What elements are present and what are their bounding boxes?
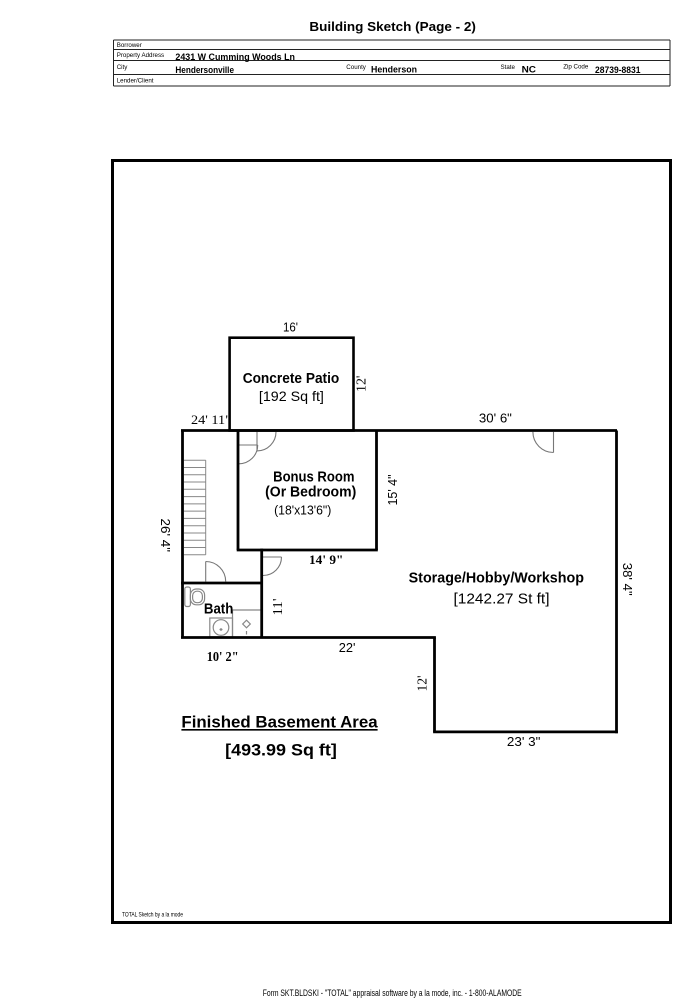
svg-text:Concrete Patio: Concrete Patio xyxy=(243,371,340,387)
svg-text:City: City xyxy=(117,64,129,71)
svg-text:Henderson: Henderson xyxy=(371,65,417,76)
svg-text:Bath: Bath xyxy=(204,602,233,618)
svg-text:Bonus Room: Bonus Room xyxy=(273,469,354,485)
svg-text:Property Address: Property Address xyxy=(117,52,164,59)
svg-text:(Or Bedroom): (Or Bedroom) xyxy=(265,485,356,501)
svg-text:10' 2": 10' 2" xyxy=(207,650,239,665)
svg-text:County: County xyxy=(346,64,367,71)
svg-text:Storage/Hobby/Workshop: Storage/Hobby/Workshop xyxy=(409,571,584,587)
svg-text:23' 3": 23' 3" xyxy=(507,735,541,749)
svg-text:Hendersonville: Hendersonville xyxy=(175,65,234,76)
svg-text:Building Sketch (Page - 2): Building Sketch (Page - 2) xyxy=(309,19,476,34)
svg-text:26' 4": 26' 4" xyxy=(158,519,172,553)
svg-text:12': 12' xyxy=(354,376,369,393)
svg-text:[192 Sq ft]: [192 Sq ft] xyxy=(259,388,324,404)
svg-text:38' 4": 38' 4" xyxy=(620,563,634,596)
svg-text:14' 9": 14' 9" xyxy=(309,552,343,567)
svg-text:[493.99 Sq ft]: [493.99 Sq ft] xyxy=(225,740,337,759)
svg-text:Lender/Client: Lender/Client xyxy=(117,78,154,85)
svg-text:16': 16' xyxy=(283,321,298,335)
svg-text:Form SKT.BLDSKI - "TOTAL" appr: Form SKT.BLDSKI - "TOTAL" appraisal soft… xyxy=(263,988,522,998)
svg-text:24' 11": 24' 11" xyxy=(191,413,231,427)
svg-text:TOTAL Sketch by a la mode: TOTAL Sketch by a la mode xyxy=(122,912,183,919)
svg-text:22': 22' xyxy=(339,641,356,655)
svg-text:Borrower: Borrower xyxy=(117,42,142,49)
svg-text:15' 4": 15' 4" xyxy=(386,475,400,506)
svg-text:12': 12' xyxy=(415,676,430,692)
svg-text:2431 W Cumming Woods Ln: 2431 W Cumming Woods Ln xyxy=(175,52,295,63)
svg-text:(18'x13'6"): (18'x13'6") xyxy=(274,503,331,518)
svg-text:Finished Basement Area: Finished Basement Area xyxy=(181,713,378,732)
svg-text:NC: NC xyxy=(522,64,537,75)
svg-text:28739-8831: 28739-8831 xyxy=(595,65,641,76)
svg-text:30' 6": 30' 6" xyxy=(479,412,512,426)
svg-text:11': 11' xyxy=(270,599,285,616)
svg-text:[1242.27 St ft]: [1242.27 St ft] xyxy=(454,592,550,608)
svg-text:Zip Code: Zip Code xyxy=(563,63,589,70)
svg-text:State: State xyxy=(501,64,516,71)
